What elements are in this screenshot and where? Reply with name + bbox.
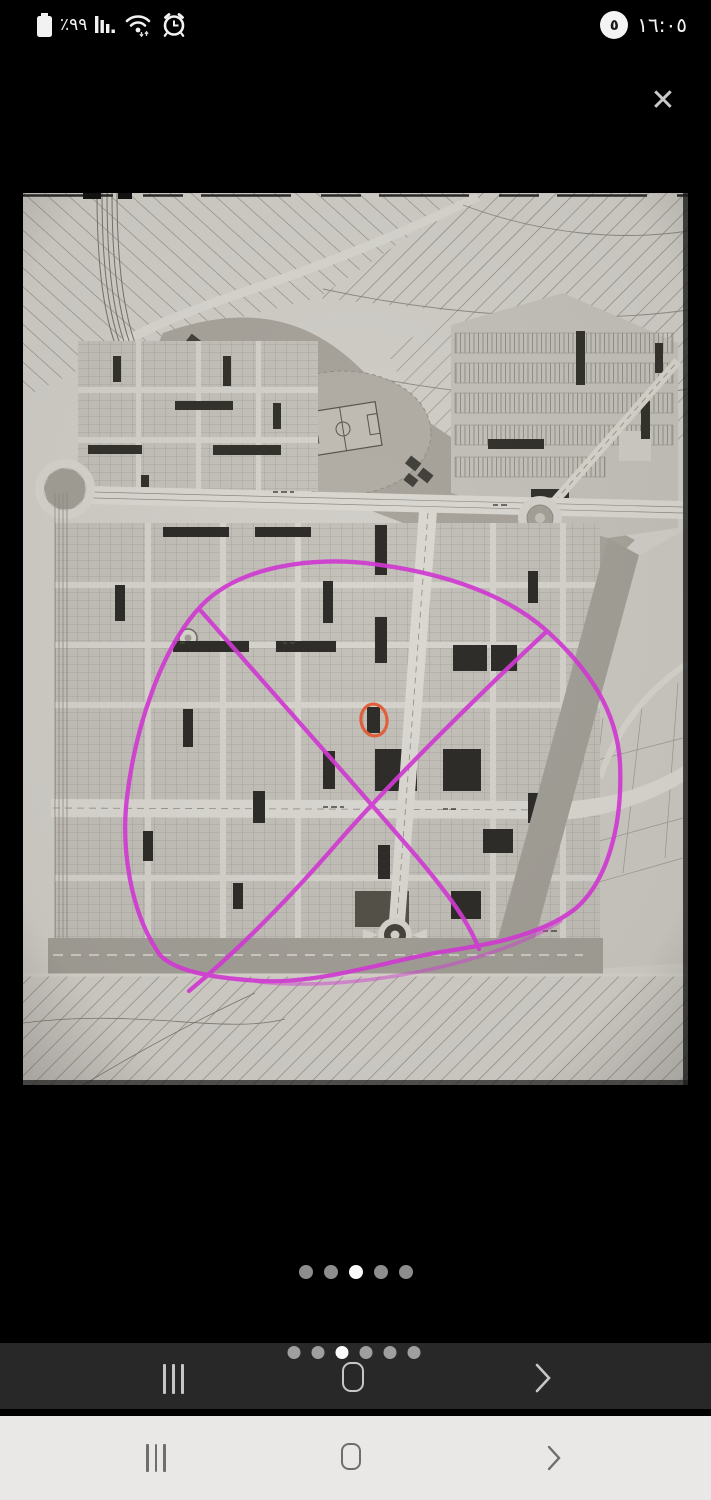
recents-button[interactable] [146,1444,166,1472]
back-button[interactable] [534,1362,552,1397]
close-icon: ✕ [650,84,675,117]
notification-badge: ٥ [600,11,628,39]
image-pager [0,1265,711,1279]
pager-dot-active [335,1346,348,1359]
chevron-right-icon [546,1444,562,1472]
status-bar-right: ٥ ١٦:٠٥ [600,8,687,42]
pager-dot [399,1265,413,1279]
back-button[interactable] [546,1444,562,1475]
wifi-icon [124,12,154,38]
close-button[interactable]: ✕ [641,79,685,123]
pager-dot [374,1265,388,1279]
screenshot-nav-bar [0,1343,711,1409]
alarm-clock-icon [161,12,187,38]
pager-dot [383,1346,396,1359]
pager-dot-active [349,1265,363,1279]
pager-dot [324,1265,338,1279]
phone-screen: ٪٩٩ ٥ ١٦:٠٥ ✕ [0,0,711,1500]
signal-bars-icon [94,13,117,37]
pager-dot [407,1346,420,1359]
pager-dot [299,1265,313,1279]
screenshot-pager [287,1346,420,1359]
clock: ١٦:٠٥ [637,13,687,37]
chevron-right-icon [534,1362,552,1394]
pager-dot [311,1346,324,1359]
pager-dot [287,1346,300,1359]
pager-dot [359,1346,372,1359]
status-bar-left: ٪٩٩ [36,10,187,40]
device-nav-bar [0,1416,711,1500]
city-plan-photo[interactable] [23,193,688,1085]
home-button[interactable] [341,1443,361,1470]
city-plan-image [23,193,688,1085]
recents-button[interactable] [163,1364,184,1394]
home-button[interactable] [342,1362,364,1392]
battery-icon [36,13,53,38]
battery-percent: ٪٩٩ [60,15,87,35]
